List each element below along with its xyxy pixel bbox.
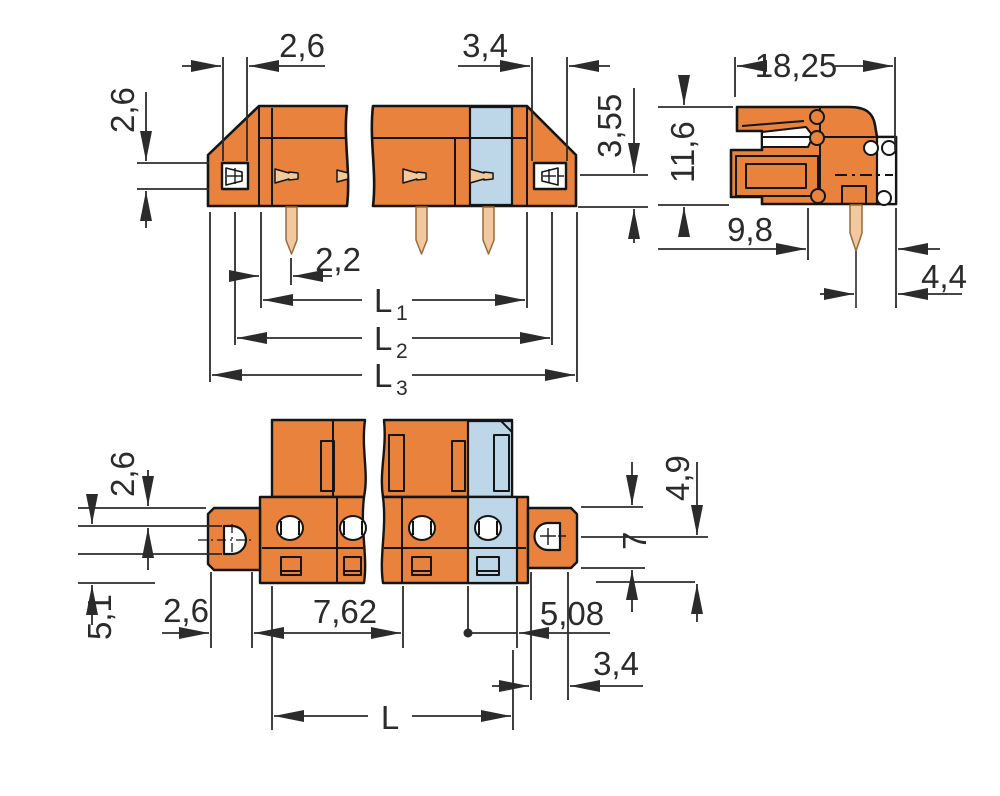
dim-label-bottom-pitch: 7,62 (313, 593, 377, 630)
connector-dimension-drawing: 2,6 3,4 3,55 2,6 (0, 0, 1000, 796)
dim-label-side-depth: 9,8 (727, 211, 773, 248)
front-end-pole-blue (470, 107, 512, 205)
dim-label-bottom-length: L (381, 699, 399, 736)
front-housing-left (208, 106, 348, 206)
front-right-window (534, 163, 566, 189)
dim-label-bottom-flange-left-width: 2,6 (163, 592, 209, 629)
dim-side-depth (658, 208, 940, 308)
dim-label-L2-sub: 2 (396, 340, 408, 363)
bottom-upper-left (272, 420, 366, 497)
dim-length-chains (210, 212, 577, 382)
dim-label-bottom-flange-top: 2,6 (104, 451, 141, 497)
dim-label-L1-sub: 1 (396, 302, 408, 325)
dim-label-front-window-height: 2,6 (104, 87, 141, 133)
dim-label-L3: L (374, 357, 392, 394)
dim-label-bottom-flange-side: 5,1 (81, 594, 118, 640)
bottom-upper-blue (468, 421, 512, 497)
dim-label-bottom-flange-right-width: 3,4 (593, 645, 639, 682)
dim-label-side-height: 11,6 (664, 121, 701, 183)
technical-drawing-page: 2,6 3,4 3,55 2,6 (0, 0, 1000, 796)
dim-label-front-right-window-width: 3,4 (462, 27, 508, 64)
dim-label-L2: L (374, 320, 392, 357)
front-left-window (222, 163, 248, 189)
bottom-left-flange (198, 508, 260, 570)
dim-label-L3-sub: 3 (396, 377, 408, 400)
dim-label-front-window-width: 2,6 (279, 27, 325, 64)
dim-label-side-width: 18,25 (755, 47, 838, 84)
side-view: 18,25 11,6 9,8 4,4 (658, 47, 967, 308)
dim-front-window-height (137, 92, 209, 228)
dim-label-bottom-last-pole: 5,08 (540, 595, 604, 632)
bottom-right-flange (528, 508, 577, 568)
side-solder-pin (850, 205, 862, 251)
dim-label-side-pin-to-edge: 4,4 (921, 258, 967, 295)
dim-label-front-pin-offset: 2,2 (315, 241, 361, 278)
bottom-view: 2,6 5,1 7 4,9 2,6 (78, 420, 708, 736)
front-view: 2,6 3,4 3,55 2,6 (104, 27, 648, 400)
dim-label-bottom-hole-to-edge: 4,9 (659, 455, 696, 501)
dim-label-L1: L (374, 282, 392, 319)
dim-label-front-contact-to-bottom: 3,55 (591, 94, 628, 158)
dim-label-bottom-flange-width: 7 (616, 532, 653, 550)
